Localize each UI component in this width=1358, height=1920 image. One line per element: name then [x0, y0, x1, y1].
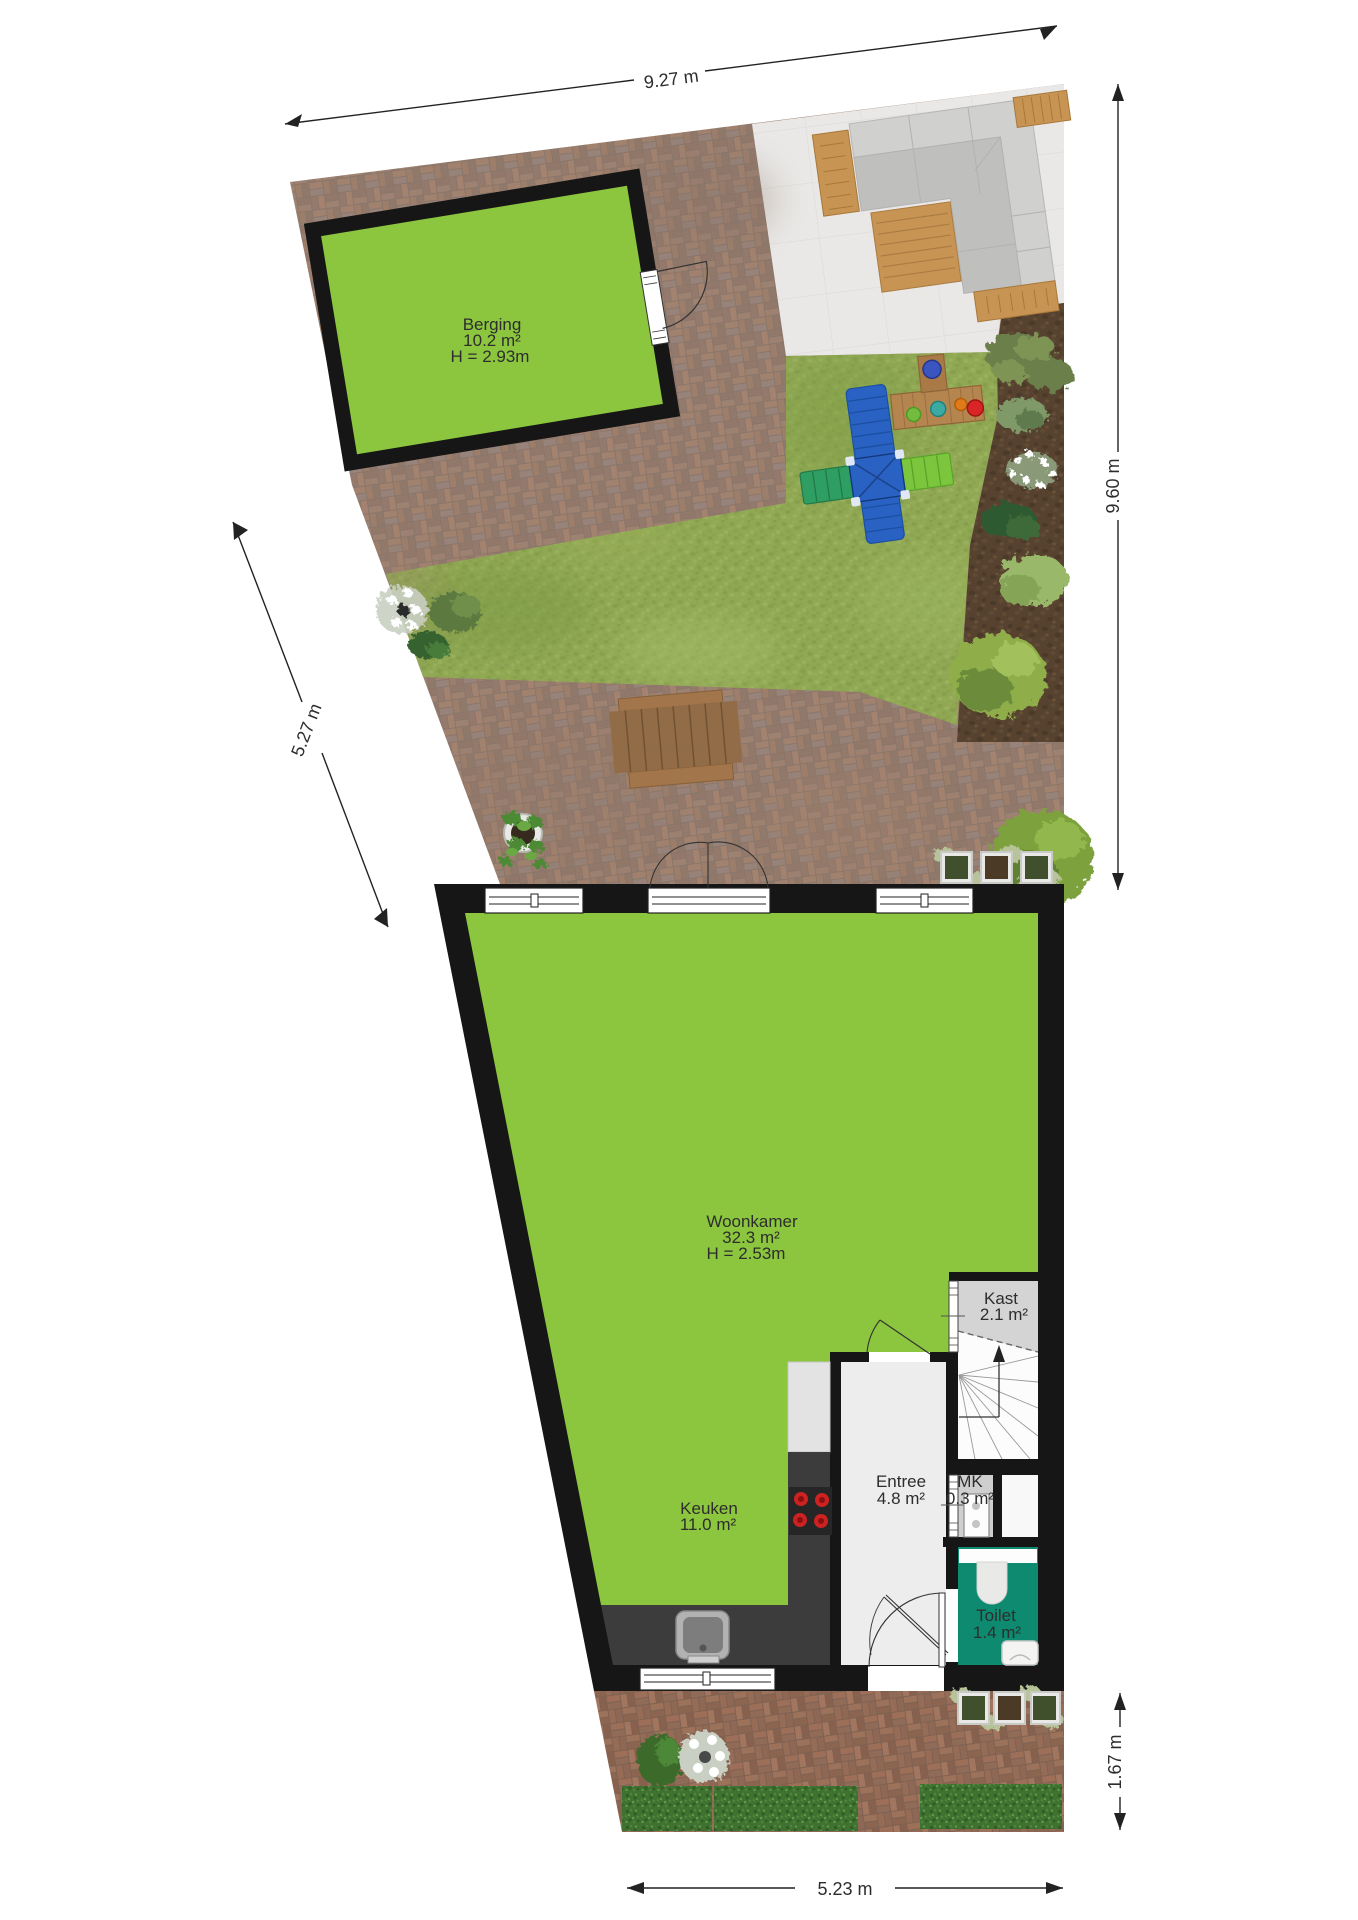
svg-text:4.8 m²: 4.8 m² — [877, 1489, 926, 1508]
svg-text:H = 2.53m: H = 2.53m — [707, 1244, 786, 1263]
svg-text:1.4 m²: 1.4 m² — [973, 1623, 1022, 1642]
svg-text:9.27 m: 9.27 m — [643, 66, 700, 93]
svg-text:2.1 m²: 2.1 m² — [980, 1305, 1029, 1324]
svg-text:0.3 m²: 0.3 m² — [946, 1489, 995, 1508]
svg-text:H = 2.93m: H = 2.93m — [451, 347, 530, 366]
svg-text:5.23 m: 5.23 m — [817, 1879, 872, 1899]
svg-text:9.60 m: 9.60 m — [1103, 458, 1123, 513]
svg-text:1.67 m: 1.67 m — [1105, 1734, 1125, 1789]
svg-text:11.0 m²: 11.0 m² — [680, 1515, 737, 1534]
svg-text:5.27 m: 5.27 m — [287, 701, 325, 760]
